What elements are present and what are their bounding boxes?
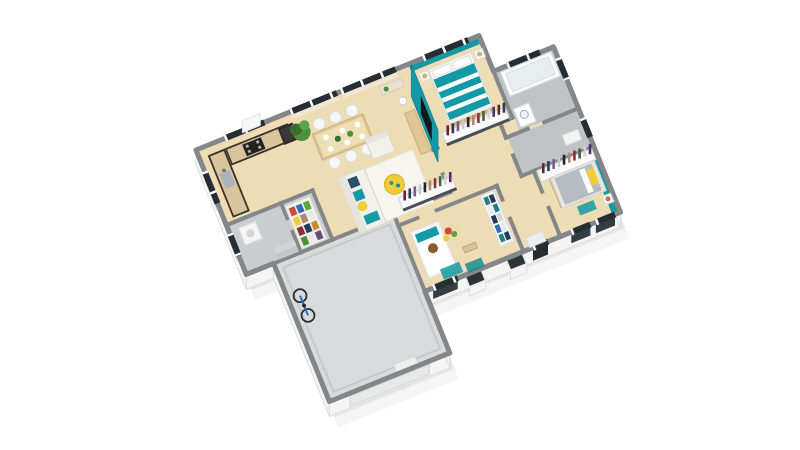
floors <box>196 36 621 402</box>
page-background <box>0 0 800 450</box>
coffee-table <box>384 174 404 194</box>
floor-lamp <box>399 97 407 105</box>
floor-plan-3d-render <box>0 0 800 450</box>
